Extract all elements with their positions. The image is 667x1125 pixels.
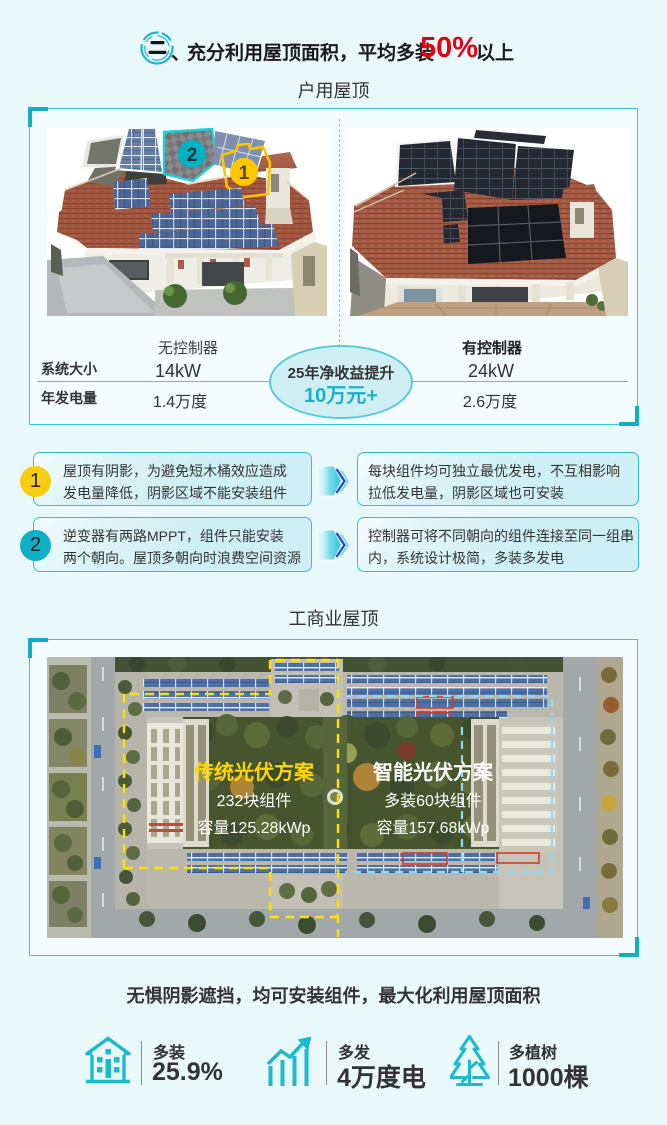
svg-text:1: 1 bbox=[239, 163, 250, 184]
svg-text:智能光伏方案: 智能光伏方案 bbox=[373, 760, 494, 784]
svg-text:2: 2 bbox=[187, 145, 198, 166]
svg-text:232块组件: 232块组件 bbox=[217, 792, 292, 810]
svg-text:容量157.68kWp: 容量157.68kWp bbox=[377, 819, 490, 837]
svg-text:多装60块组件: 多装60块组件 bbox=[384, 792, 482, 810]
svg-text:传统光伏方案: 传统光伏方案 bbox=[193, 760, 315, 784]
svg-text:容量125.28kWp: 容量125.28kWp bbox=[198, 819, 311, 837]
